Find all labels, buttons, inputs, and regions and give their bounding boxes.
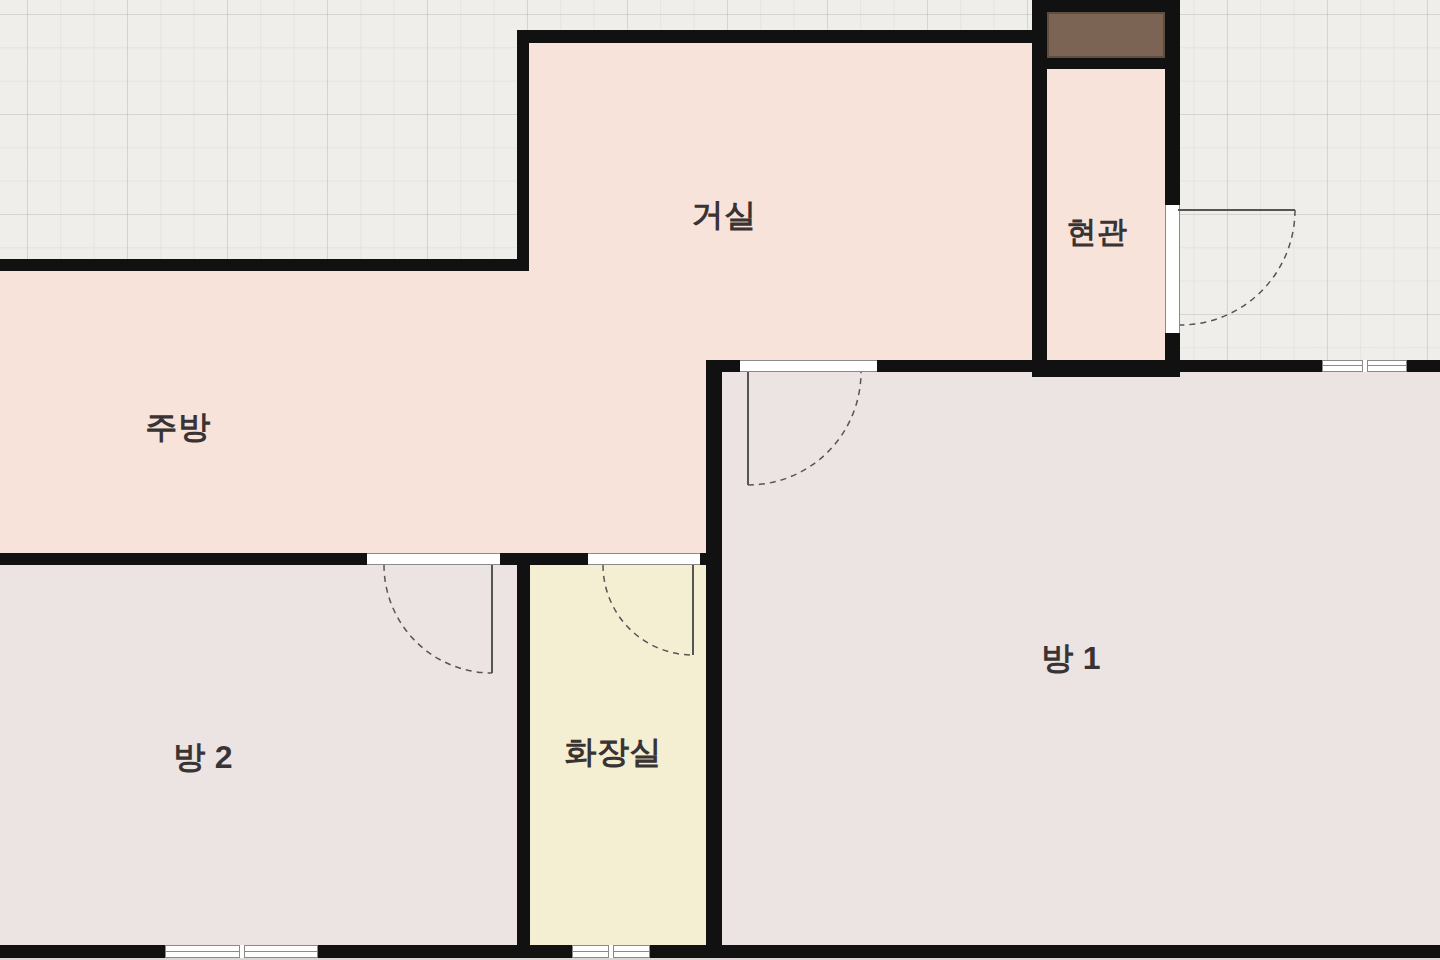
door-swing-bathroom[interactable] [598,565,697,659]
wall-room1-top-c [1407,360,1440,372]
room-label-kitchen: 주방 [146,406,211,450]
window-room1[interactable] [1322,360,1407,372]
room-kitchen[interactable] [0,265,715,559]
wall-room1-top-b [877,360,1322,372]
wall-mid-c [700,553,722,565]
wall-entrance-inner [1047,58,1165,69]
room-label-room1: 방 1 [1041,637,1101,681]
wall-room2-bath-divider [517,553,530,952]
room-label-room2: 방 2 [173,736,233,780]
wall-living-top [517,30,1047,43]
wall-kitchen-top [0,259,529,271]
door-swing-room1[interactable] [735,372,867,490]
door-frame-room1 [740,360,877,372]
door-swing-entrance[interactable] [1178,203,1300,329]
room-label-entrance: 현관 [1067,212,1128,253]
wall-room1-left [706,360,722,958]
entrance-front-door-unit[interactable] [1047,12,1165,58]
door-swing-room2[interactable] [380,565,496,677]
room-label-living: 거실 [692,194,757,238]
wall-living-left [517,30,529,271]
wall-bottom-b [318,945,572,958]
wall-mid-a [0,553,367,565]
window-bathroom[interactable] [572,945,650,958]
door-frame-room2 [367,553,500,565]
wall-entrance-right-upper [1165,13,1180,205]
wall-entrance-left [1032,13,1047,377]
wall-bottom-a [0,945,165,958]
room-label-bathroom: 화장실 [564,731,662,775]
window-room2[interactable] [165,945,318,958]
wall-bottom-c [650,945,1440,958]
wall-mid-b [500,553,588,565]
floor-plan-canvas: 거실 현관 주방 방 1 방 2 화장실 [0,0,1440,960]
door-frame-bathroom [588,553,700,565]
